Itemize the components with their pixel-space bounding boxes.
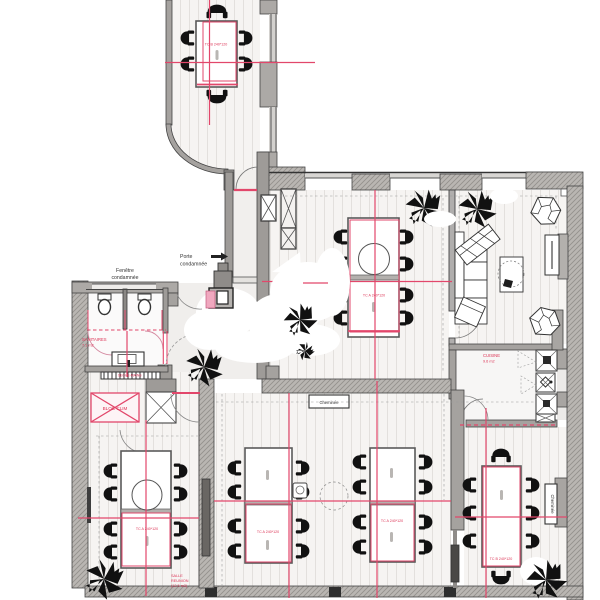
svg-text:TC A 240*120: TC A 240*120 [257, 530, 279, 534]
svg-text:TC A 240*120: TC A 240*120 [363, 294, 385, 298]
svg-text:condamnée: condamnée [111, 275, 138, 281]
svg-text:condamnée: condamnée [180, 262, 207, 268]
svg-text:SANITAIRES: SANITAIRES [82, 337, 107, 342]
svg-text:TC A 240*120: TC A 240*120 [381, 519, 403, 523]
svg-text:SALLE: SALLE [171, 574, 183, 578]
svg-text:TC A 240*120: TC A 240*120 [136, 527, 158, 531]
svg-text:TC B 240*120: TC B 240*120 [490, 557, 513, 561]
svg-text:CUISINE: CUISINE [483, 353, 500, 358]
svg-text:TC B 240*120: TC B 240*120 [205, 43, 228, 47]
svg-text:BLOC CLIM: BLOC CLIM [103, 406, 128, 411]
svg-text:(12.5 m2): (12.5 m2) [171, 584, 188, 588]
svg-text:7.1 m2: 7.1 m2 [82, 344, 94, 348]
svg-text:Fenêtre: Fenêtre [116, 268, 134, 274]
svg-text:REUNION: REUNION [171, 579, 189, 583]
svg-text:SECHE-MAINS: SECHE-MAINS [118, 374, 142, 378]
svg-text:Cheminée: Cheminée [319, 400, 339, 405]
svg-text:Porte: Porte [180, 254, 193, 260]
svg-text:9.6 m2: 9.6 m2 [483, 360, 495, 364]
svg-text:Cheminée: Cheminée [550, 494, 555, 514]
